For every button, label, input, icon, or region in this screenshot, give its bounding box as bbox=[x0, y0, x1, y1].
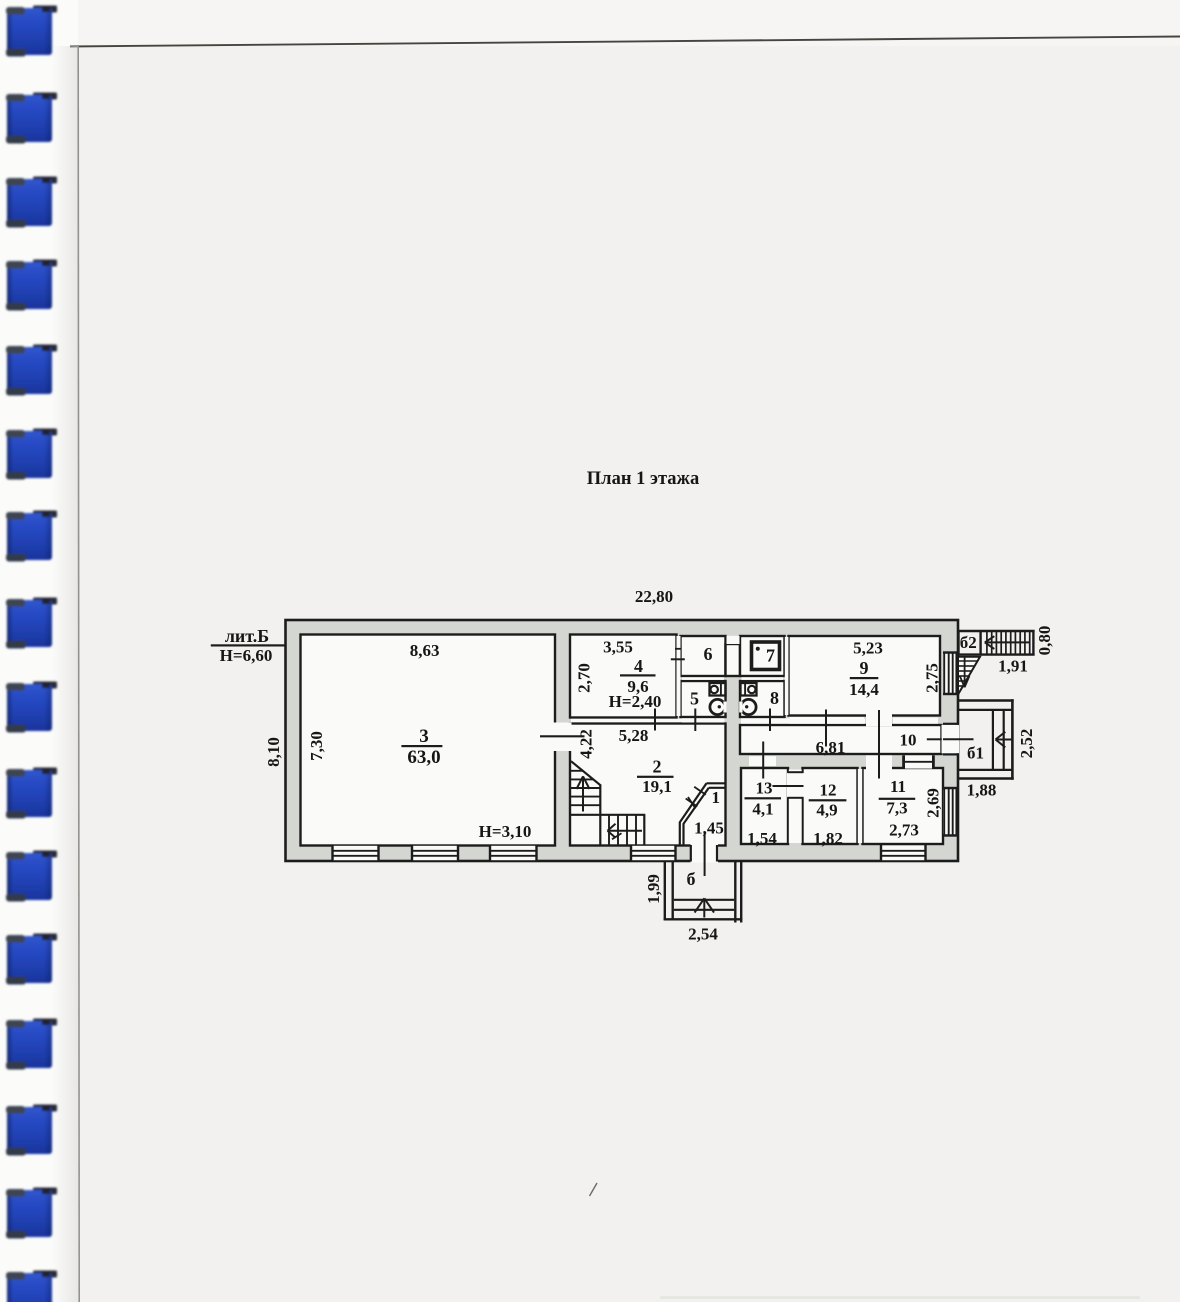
svg-text:10: 10 bbox=[900, 731, 917, 750]
svg-text:1,54: 1,54 bbox=[747, 829, 777, 848]
svg-text:4,9: 4,9 bbox=[816, 801, 837, 820]
svg-text:13: 13 bbox=[756, 779, 773, 798]
svg-text:6,81: 6,81 bbox=[816, 738, 846, 757]
svg-text:2,52: 2,52 bbox=[1017, 729, 1036, 759]
svg-text:H=6,60: H=6,60 bbox=[220, 646, 273, 665]
svg-text:5,28: 5,28 bbox=[619, 726, 649, 745]
svg-text:лит.Б: лит.Б bbox=[225, 626, 269, 646]
svg-text:4,22: 4,22 bbox=[577, 729, 596, 759]
svg-text:0,80: 0,80 bbox=[1035, 626, 1054, 656]
svg-text:H=2,40: H=2,40 bbox=[609, 692, 662, 711]
svg-text:2,70: 2,70 bbox=[575, 663, 594, 693]
svg-text:22,80: 22,80 bbox=[635, 587, 673, 606]
svg-text:б1: б1 bbox=[967, 744, 984, 763]
svg-text:1: 1 bbox=[712, 788, 721, 807]
svg-text:2,69: 2,69 bbox=[924, 788, 943, 818]
svg-text:1,82: 1,82 bbox=[813, 829, 843, 848]
svg-text:б: б bbox=[687, 869, 696, 889]
svg-text:5: 5 bbox=[690, 689, 699, 709]
svg-text:1,45: 1,45 bbox=[694, 819, 724, 838]
svg-text:2,73: 2,73 bbox=[889, 821, 919, 840]
svg-text:2: 2 bbox=[653, 757, 662, 777]
svg-text:8,63: 8,63 bbox=[410, 641, 440, 660]
svg-text:4,1: 4,1 bbox=[752, 800, 773, 819]
svg-text:б2: б2 bbox=[960, 633, 977, 652]
svg-text:2,75: 2,75 bbox=[923, 663, 942, 693]
svg-text:9: 9 bbox=[860, 658, 869, 678]
svg-text:H=3,10: H=3,10 bbox=[479, 822, 532, 841]
svg-text:3,55: 3,55 bbox=[603, 638, 633, 657]
svg-text:6: 6 bbox=[704, 644, 713, 664]
svg-text:7,30: 7,30 bbox=[307, 731, 326, 761]
svg-text:19,1: 19,1 bbox=[642, 777, 672, 796]
svg-text:1,99: 1,99 bbox=[644, 874, 663, 904]
svg-text:5,23: 5,23 bbox=[853, 639, 883, 658]
svg-text:11: 11 bbox=[890, 777, 906, 796]
svg-text:7: 7 bbox=[766, 646, 775, 666]
svg-text:1,91: 1,91 bbox=[998, 657, 1028, 676]
svg-text:3: 3 bbox=[419, 726, 429, 747]
svg-text:63,0: 63,0 bbox=[407, 747, 440, 768]
svg-text:План 1 этажа: План 1 этажа bbox=[587, 469, 699, 489]
svg-text:7,3: 7,3 bbox=[886, 799, 907, 818]
svg-text:2,54: 2,54 bbox=[688, 925, 718, 944]
svg-text:1,88: 1,88 bbox=[967, 781, 997, 800]
svg-text:8: 8 bbox=[770, 688, 779, 708]
svg-text:12: 12 bbox=[820, 781, 837, 800]
svg-text:8,10: 8,10 bbox=[264, 737, 283, 767]
svg-text:14,4: 14,4 bbox=[849, 680, 879, 699]
svg-text:4: 4 bbox=[634, 656, 643, 676]
